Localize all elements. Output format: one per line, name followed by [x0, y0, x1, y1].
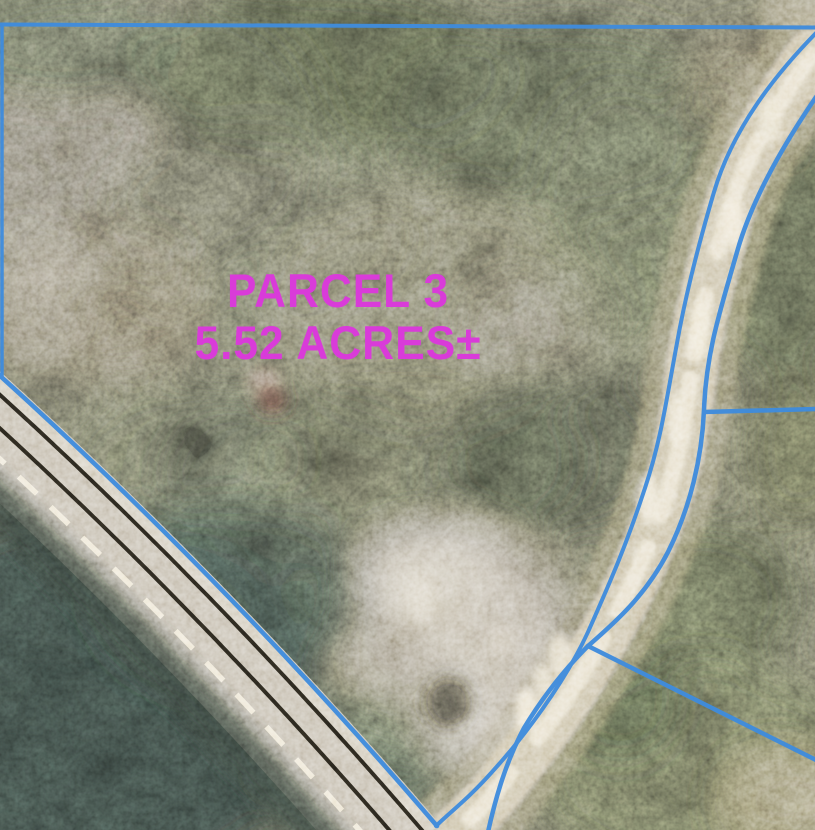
parcel-label-line2: 5.52 ACRES±: [195, 316, 482, 369]
aerial-map-canvas: PARCEL 3 5.52 ACRES±: [0, 0, 815, 830]
aerial-parcel-map: PARCEL 3 5.52 ACRES±: [0, 0, 815, 830]
parcel-label-line1: PARCEL 3: [227, 264, 449, 317]
parcel-label: PARCEL 3 5.52 ACRES±: [195, 264, 482, 369]
east-branch-line: [704, 409, 815, 412]
photo-grain-fine: [0, 0, 815, 830]
